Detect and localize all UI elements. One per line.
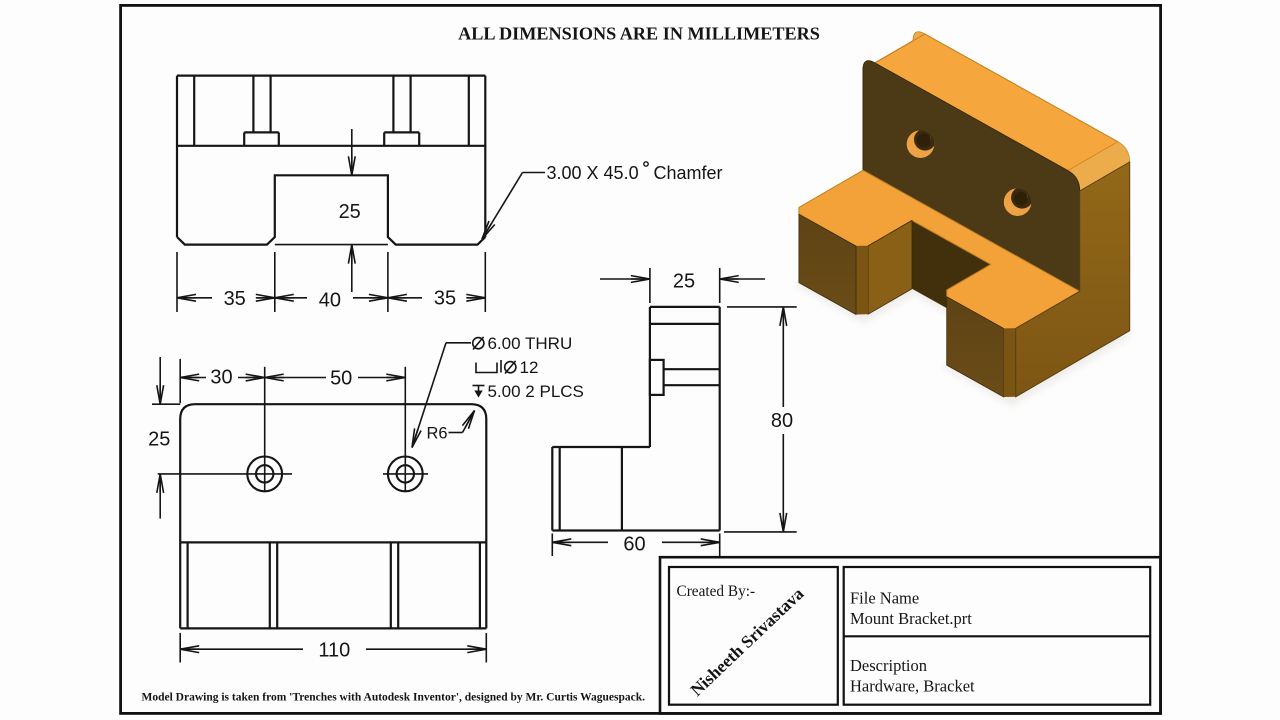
svg-text:Description: Description xyxy=(850,656,927,675)
svg-text:R6: R6 xyxy=(426,425,447,443)
svg-text:25: 25 xyxy=(673,271,695,293)
svg-text:Chamfer: Chamfer xyxy=(654,163,723,183)
svg-text:Model Drawing is taken from 'T: Model Drawing is taken from 'Trenches wi… xyxy=(142,692,646,704)
svg-text:6.00 THRU: 6.00 THRU xyxy=(488,334,573,353)
svg-text:Hardware, Bracket: Hardware, Bracket xyxy=(850,677,975,696)
svg-text:35: 35 xyxy=(224,288,246,310)
svg-text:Nisheeth Srivastava: Nisheeth Srivastava xyxy=(686,583,807,700)
svg-text:Created By:-: Created By:- xyxy=(677,583,756,600)
svg-text:25: 25 xyxy=(339,201,361,223)
svg-text:12: 12 xyxy=(520,358,539,377)
svg-text:ALL DIMENSIONS ARE IN MILLIMET: ALL DIMENSIONS ARE IN MILLIMETERS xyxy=(458,24,820,44)
svg-text:60: 60 xyxy=(623,533,645,555)
svg-text:40: 40 xyxy=(319,290,341,312)
svg-text:File Name: File Name xyxy=(850,589,919,608)
svg-text:5.00 2 PLCS: 5.00 2 PLCS xyxy=(488,382,584,401)
svg-text:35: 35 xyxy=(434,288,456,310)
svg-text:25: 25 xyxy=(148,429,170,451)
svg-text:Mount Bracket.prt: Mount Bracket.prt xyxy=(850,609,972,628)
svg-text:110: 110 xyxy=(318,639,350,661)
svg-text:50: 50 xyxy=(330,368,352,390)
svg-text:3.00 X 45.0: 3.00 X 45.0 xyxy=(547,163,639,183)
svg-text:80: 80 xyxy=(771,410,793,432)
svg-text:30: 30 xyxy=(210,367,232,389)
